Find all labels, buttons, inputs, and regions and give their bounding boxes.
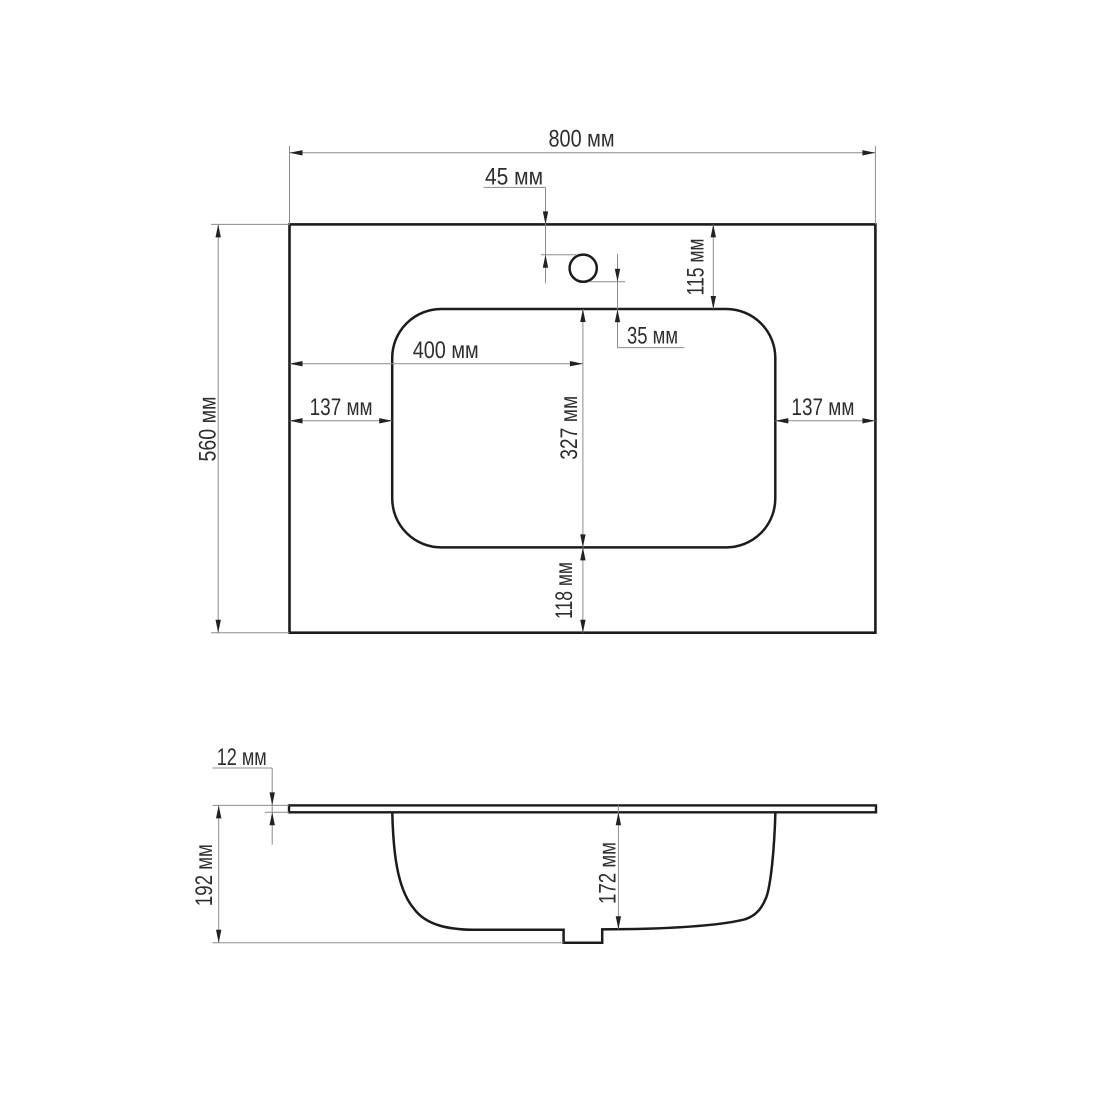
svg-text:115 мм: 115 мм bbox=[682, 239, 709, 296]
svg-text:137 мм: 137 мм bbox=[310, 394, 373, 421]
svg-text:800 мм: 800 мм bbox=[549, 126, 615, 153]
svg-text:45 мм: 45 мм bbox=[485, 163, 543, 190]
svg-text:400 мм: 400 мм bbox=[413, 337, 479, 364]
svg-text:118 мм: 118 мм bbox=[551, 562, 578, 619]
svg-text:172 мм: 172 мм bbox=[595, 842, 622, 904]
svg-text:12 мм: 12 мм bbox=[217, 744, 267, 771]
svg-text:560 мм: 560 мм bbox=[195, 397, 222, 462]
svg-text:35 мм: 35 мм bbox=[627, 323, 678, 350]
svg-text:192 мм: 192 мм bbox=[191, 844, 218, 906]
svg-text:137 мм: 137 мм bbox=[791, 394, 854, 421]
svg-text:327 мм: 327 мм bbox=[556, 396, 583, 460]
